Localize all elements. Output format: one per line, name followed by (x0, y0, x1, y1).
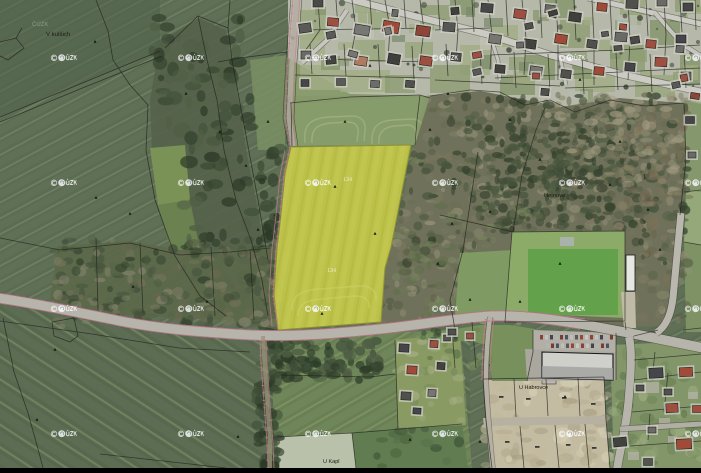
svg-text:U Habrovce: U Habrovce (519, 385, 548, 391)
svg-text:ČÚZK: ČÚZK (32, 20, 48, 28)
svg-text:134: 134 (343, 177, 352, 183)
svg-text:134: 134 (327, 268, 336, 274)
svg-text:U Kapl: U Kapl (323, 459, 340, 465)
svg-text:V kutšich: V kutšich (46, 31, 70, 38)
svg-text:Hejnova: Hejnova (544, 192, 566, 199)
